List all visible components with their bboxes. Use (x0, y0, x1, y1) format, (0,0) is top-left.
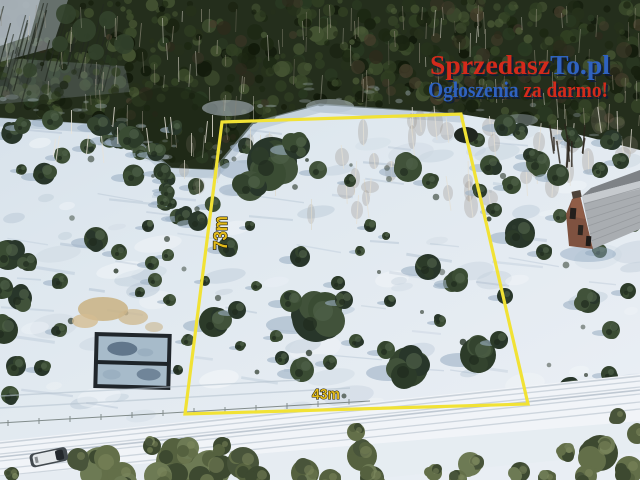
svg-text:43m: 43m (312, 386, 340, 403)
svg-text:73m: 73m (211, 216, 232, 250)
svg-text:SprzedaszTo.pl: SprzedaszTo.pl (430, 50, 610, 80)
svg-text:Ogłoszenia za darmo!: Ogłoszenia za darmo! (428, 77, 608, 102)
